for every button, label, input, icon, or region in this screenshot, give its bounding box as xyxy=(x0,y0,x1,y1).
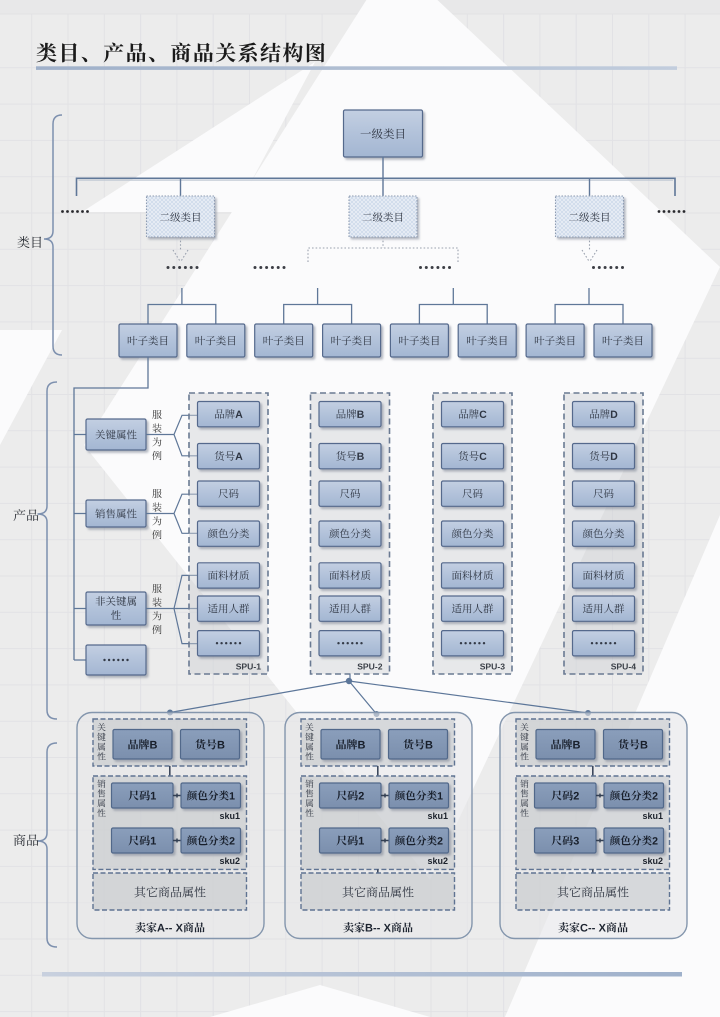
svg-text:SPU-3: SPU-3 xyxy=(480,662,506,672)
svg-text:sku1: sku1 xyxy=(219,811,240,821)
svg-text:sku1: sku1 xyxy=(427,811,448,821)
svg-text:SPU-4: SPU-4 xyxy=(611,662,637,672)
svg-text:SPU-2: SPU-2 xyxy=(357,662,383,672)
svg-text:sku2: sku2 xyxy=(642,856,663,866)
svg-text:sku2: sku2 xyxy=(427,856,448,866)
svg-text:sku1: sku1 xyxy=(642,811,663,821)
svg-text:sku2: sku2 xyxy=(219,856,240,866)
svg-text:SPU-1: SPU-1 xyxy=(236,662,262,672)
